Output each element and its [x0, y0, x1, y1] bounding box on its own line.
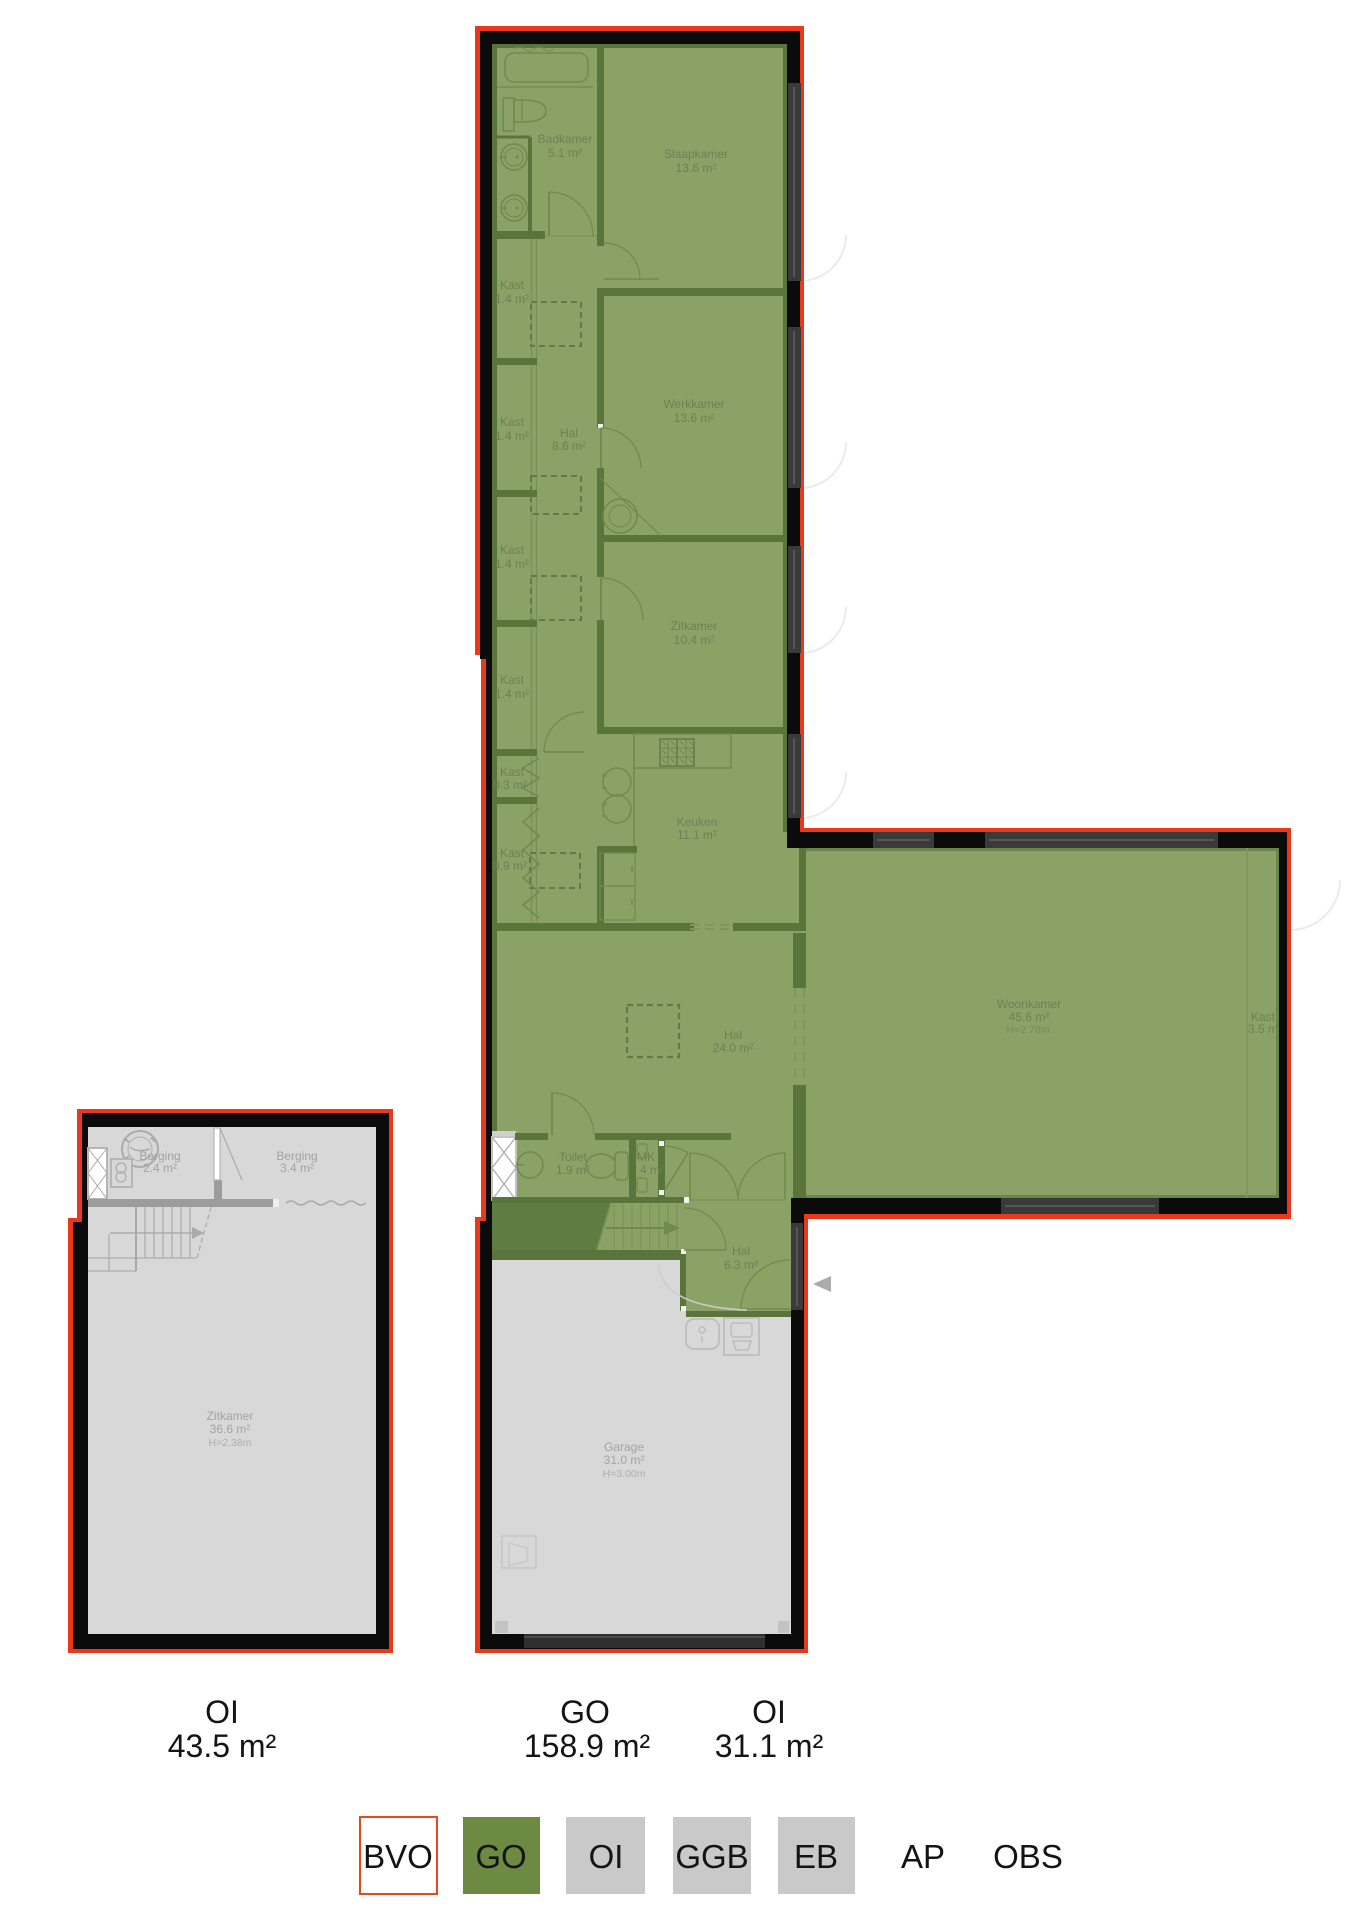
svg-text:H=3.00m: H=3.00m: [603, 1468, 646, 1480]
svg-text:0.9 m²: 0.9 m²: [493, 859, 527, 873]
svg-text:EB: EB: [794, 1838, 838, 1875]
svg-text:H=2.38m: H=2.38m: [209, 1437, 252, 1449]
svg-text:Hal: Hal: [732, 1244, 750, 1258]
svg-text:Hal: Hal: [560, 426, 578, 440]
svg-text:AP: AP: [901, 1838, 945, 1875]
svg-text:24.0 m²: 24.0 m²: [713, 1041, 754, 1055]
svg-text:13.6 m²: 13.6 m²: [674, 411, 715, 425]
svg-text:Woonkamer: Woonkamer: [997, 997, 1061, 1011]
svg-text:BVO: BVO: [363, 1838, 433, 1875]
svg-text:43.5 m²: 43.5 m²: [168, 1728, 277, 1764]
svg-text:13.6 m²: 13.6 m²: [676, 161, 717, 175]
svg-text:Kast: Kast: [500, 278, 525, 292]
svg-text:Badkamer: Badkamer: [538, 132, 593, 146]
svg-text:6.3 m²: 6.3 m²: [724, 1258, 758, 1272]
svg-text:4 m²: 4 m²: [640, 1163, 664, 1177]
svg-text:0.3 m²: 0.3 m²: [493, 778, 527, 792]
svg-text:Keuken: Keuken: [677, 815, 718, 829]
svg-text:GO: GO: [475, 1838, 526, 1875]
svg-text:Kast: Kast: [500, 415, 525, 429]
svg-text:MK: MK: [637, 1150, 655, 1164]
svg-text:Toilet: Toilet: [559, 1150, 588, 1164]
svg-text:OI: OI: [589, 1838, 624, 1875]
svg-text:GGB: GGB: [675, 1838, 748, 1875]
svg-text:1.4 m²: 1.4 m²: [495, 557, 529, 571]
svg-text:Zitkamer: Zitkamer: [207, 1409, 254, 1423]
svg-text:Hal: Hal: [724, 1028, 742, 1042]
svg-text:2.4 m²: 2.4 m²: [143, 1161, 177, 1175]
svg-text:31.0 m²: 31.0 m²: [604, 1453, 645, 1467]
svg-text:1.4 m²: 1.4 m²: [495, 429, 529, 443]
svg-text:3.5 m: 3.5 m: [1248, 1022, 1278, 1036]
svg-text:OI: OI: [752, 1694, 786, 1730]
svg-text:10.4 m²: 10.4 m²: [674, 633, 715, 647]
svg-text:158.9 m²: 158.9 m²: [524, 1728, 651, 1764]
svg-text:Slaapkamer: Slaapkamer: [664, 147, 728, 161]
svg-text:45.6 m²: 45.6 m²: [1009, 1010, 1050, 1024]
svg-text:Kast: Kast: [500, 765, 525, 779]
svg-text:Garage: Garage: [604, 1440, 644, 1454]
svg-text:1.4 m²: 1.4 m²: [495, 687, 529, 701]
svg-text:11.1 m²: 11.1 m²: [677, 828, 717, 842]
svg-text:3.4 m²: 3.4 m²: [280, 1161, 314, 1175]
svg-text:1.9 m²: 1.9 m²: [556, 1163, 590, 1177]
svg-text:Kast: Kast: [500, 543, 525, 557]
svg-text:OI: OI: [205, 1694, 239, 1730]
svg-text:Zitkamer: Zitkamer: [671, 619, 718, 633]
svg-text:GO: GO: [560, 1694, 610, 1730]
svg-text:8.6 m²: 8.6 m²: [552, 439, 586, 453]
svg-text:31.1 m²: 31.1 m²: [715, 1728, 824, 1764]
svg-text:1.4 m²: 1.4 m²: [495, 292, 529, 306]
svg-text:Kast: Kast: [500, 673, 525, 687]
svg-text:OBS: OBS: [993, 1838, 1063, 1875]
svg-text:Werkkamer: Werkkamer: [663, 397, 724, 411]
svg-text:36.6 m²: 36.6 m²: [210, 1422, 251, 1436]
svg-text:H=2.78m: H=2.78m: [1007, 1024, 1050, 1036]
svg-text:5.1 m²: 5.1 m²: [548, 146, 582, 160]
svg-text:Kast: Kast: [500, 846, 525, 860]
